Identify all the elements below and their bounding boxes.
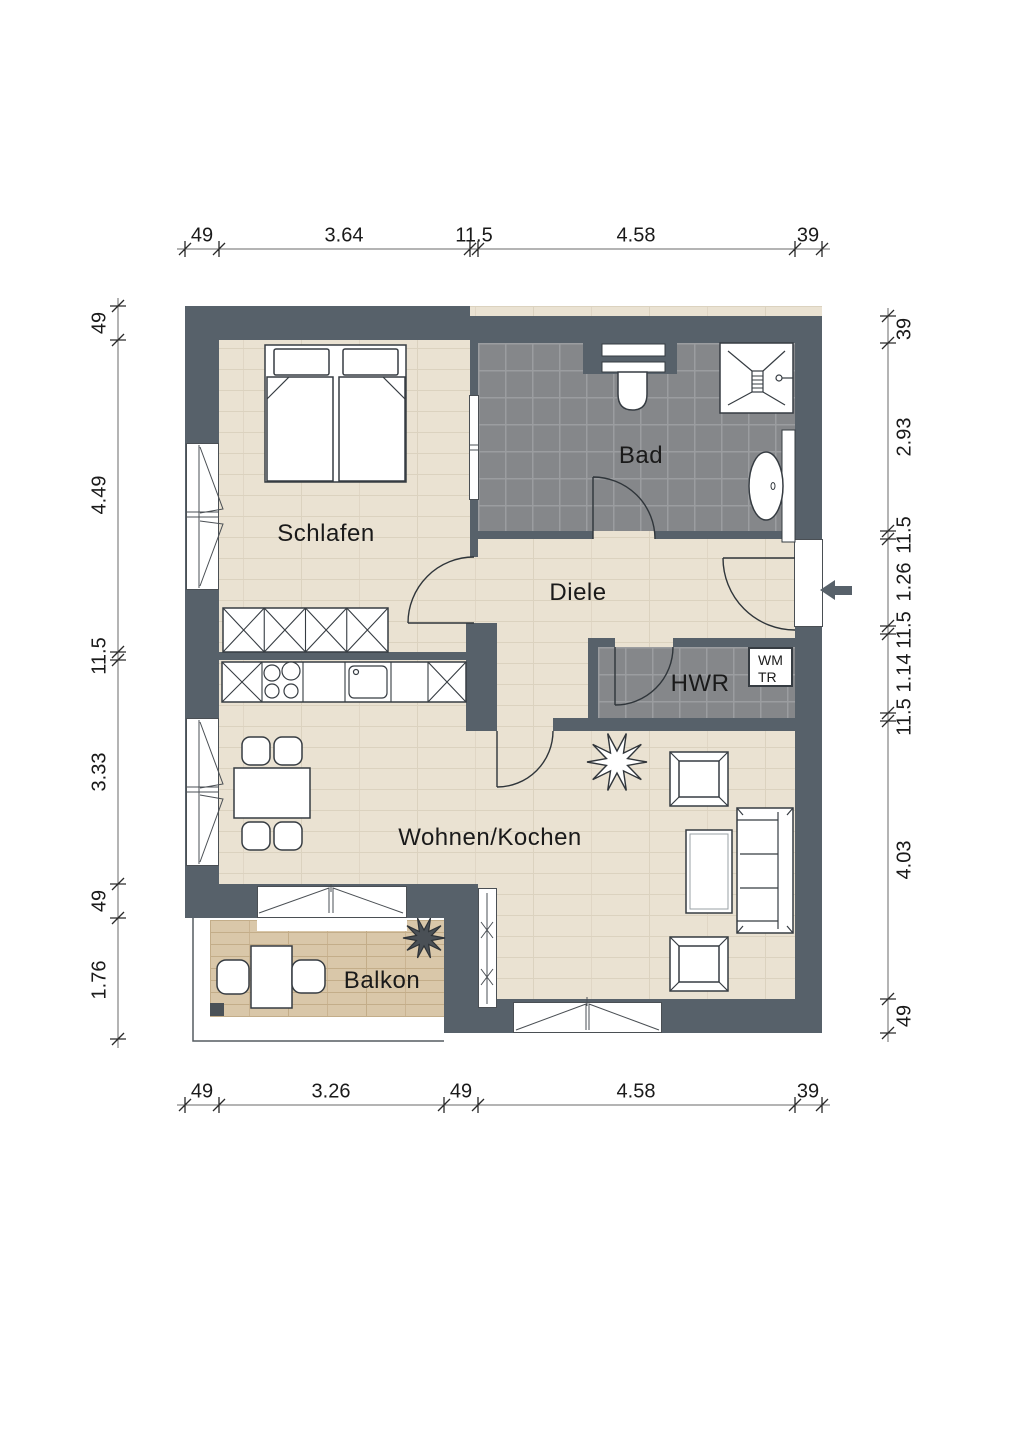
wall-bad-bottom-left bbox=[470, 531, 593, 539]
balcony-door-sill bbox=[257, 918, 407, 931]
dim-right-3: 1.26 bbox=[894, 563, 917, 602]
room-label-schlafen: Schlafen bbox=[277, 520, 374, 548]
dim-bottom-2: 49 bbox=[450, 1081, 472, 1104]
dim-top-1: 3.64 bbox=[325, 225, 364, 248]
wall-hwr-left bbox=[588, 638, 598, 725]
window-schlafen-icon bbox=[186, 443, 219, 590]
dim-right-4: 11.5 bbox=[894, 611, 917, 648]
wall-right bbox=[795, 316, 822, 1033]
washer-dryer-box: WM TR bbox=[748, 647, 793, 687]
floor-plan: WM TR bbox=[0, 0, 1015, 1440]
window-bottom-icon bbox=[513, 1002, 662, 1033]
dim-left-1: 4.49 bbox=[89, 476, 112, 515]
dim-top-2: 11.5 bbox=[455, 225, 492, 248]
wall-schlafen-bad-lower bbox=[470, 500, 478, 557]
wall-bad-bottom-right bbox=[655, 531, 795, 539]
wall-hwr-top bbox=[673, 638, 795, 647]
wall-top-left bbox=[185, 306, 470, 340]
dim-right-6: 11.5 bbox=[894, 698, 917, 735]
wall-toilet-niche bbox=[583, 340, 677, 374]
dim-left-2: 11.5 bbox=[89, 637, 112, 674]
dim-right-8: 49 bbox=[894, 1005, 917, 1027]
dim-right-1: 2.93 bbox=[894, 418, 917, 457]
wall-schlafen-bad-upper bbox=[470, 340, 478, 395]
dim-top-3: 4.58 bbox=[617, 225, 656, 248]
entry-arrow-icon bbox=[820, 580, 852, 600]
dim-bottom-4: 39 bbox=[797, 1081, 819, 1104]
room-label-bad: Bad bbox=[619, 442, 663, 470]
dim-left-4: 49 bbox=[89, 890, 112, 912]
wall-hwr-top-stub bbox=[588, 638, 615, 647]
entrance-opening bbox=[794, 539, 823, 627]
glass-partition-icon bbox=[469, 395, 479, 500]
window-tall-icon bbox=[478, 888, 497, 1008]
wall-kitchen bbox=[219, 652, 470, 660]
dim-top-4: 39 bbox=[797, 225, 819, 248]
wall-pillar-kitchen bbox=[466, 623, 497, 731]
dim-left-3: 3.33 bbox=[89, 753, 112, 792]
wall-top-right bbox=[470, 316, 822, 343]
dim-bottom-1: 3.26 bbox=[312, 1081, 351, 1104]
wall-wohnen-top bbox=[553, 718, 795, 731]
balcony-door-icon bbox=[257, 886, 407, 918]
dim-right-0: 39 bbox=[894, 318, 917, 340]
window-wohnen-icon bbox=[186, 718, 219, 866]
wall-lower-left bbox=[444, 918, 478, 999]
washing-machine-label: WM bbox=[758, 652, 791, 669]
dim-left-0: 49 bbox=[89, 312, 112, 334]
dim-right-7: 4.03 bbox=[894, 841, 917, 880]
room-label-balkon: Balkon bbox=[344, 967, 420, 995]
dim-right-5: 1.14 bbox=[894, 654, 917, 693]
dim-left-5: 1.76 bbox=[89, 961, 112, 1000]
dim-bottom-0: 49 bbox=[191, 1081, 213, 1104]
room-label-wohnen-kochen: Wohnen/Kochen bbox=[398, 824, 582, 852]
room-label-hwr: HWR bbox=[671, 670, 730, 698]
dim-right-2: 11.5 bbox=[894, 516, 917, 553]
dryer-label: TR bbox=[758, 669, 791, 686]
dim-top-0: 49 bbox=[191, 225, 213, 248]
dim-bottom-3: 4.58 bbox=[617, 1081, 656, 1104]
room-label-diele: Diele bbox=[549, 579, 606, 607]
